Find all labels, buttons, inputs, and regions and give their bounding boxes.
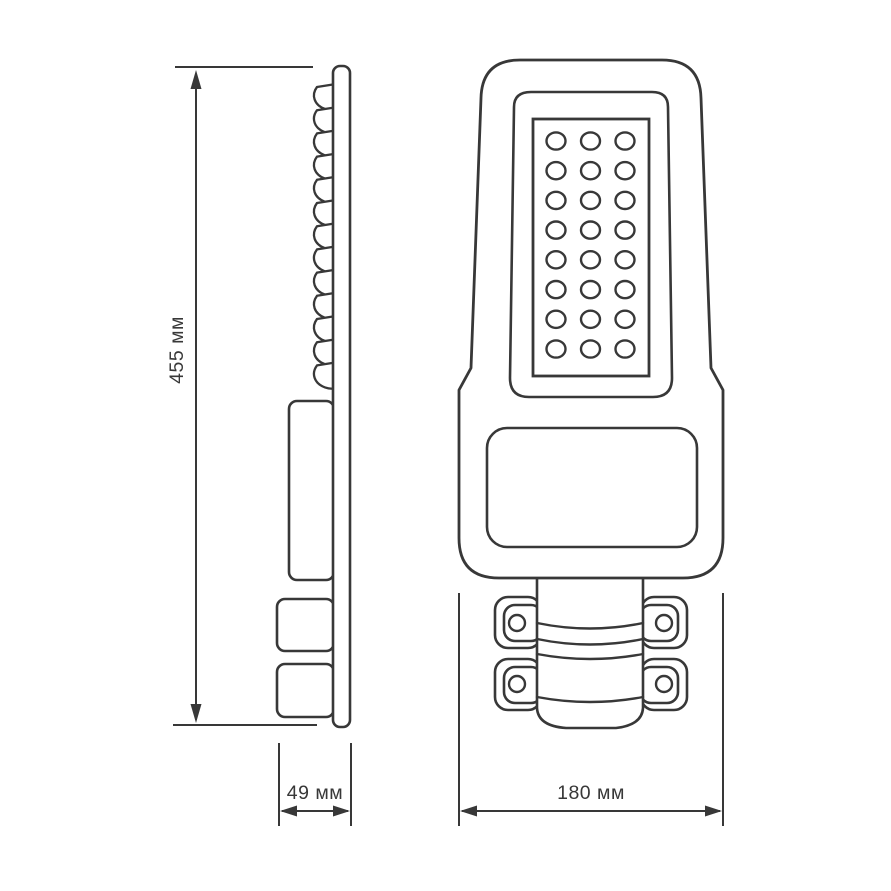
side-clamp-lower (277, 664, 334, 717)
led-lens (616, 340, 635, 357)
technical-drawing: 455 мм 49 мм (0, 0, 891, 891)
depth-dimension: 49 мм (279, 743, 351, 826)
arrow-right-icon (705, 806, 722, 817)
width-dim-label: 180 мм (557, 782, 625, 804)
side-plate (333, 66, 350, 727)
led-lens (616, 192, 635, 209)
front-door-panel (487, 428, 697, 547)
arrow-right-icon (333, 806, 350, 817)
height-dim-label: 455 мм (166, 316, 188, 384)
drawing-page: 455 мм 49 мм (0, 0, 891, 891)
led-lens (547, 222, 566, 239)
led-panel (533, 119, 649, 376)
front-view: 180 мм (459, 60, 723, 826)
led-lens (547, 311, 566, 328)
side-driver-box (289, 401, 334, 580)
led-lens (581, 192, 600, 209)
depth-dim-label: 49 мм (287, 782, 343, 804)
side-view: 455 мм 49 мм (166, 66, 351, 826)
side-clamp-upper (277, 599, 334, 651)
led-lens (547, 281, 566, 298)
led-lens (547, 162, 566, 179)
arrow-left-icon (460, 806, 477, 817)
led-lens (616, 311, 635, 328)
arrow-left-icon (280, 806, 297, 817)
led-lens (581, 251, 600, 268)
led-lens (616, 162, 635, 179)
led-lens (616, 251, 635, 268)
led-lens (616, 222, 635, 239)
led-lens (581, 340, 600, 357)
led-lens (581, 311, 600, 328)
led-lens (547, 251, 566, 268)
led-lens (581, 162, 600, 179)
arrow-down-icon (191, 704, 202, 723)
led-lens (547, 340, 566, 357)
arrow-up-icon (191, 70, 202, 89)
led-lens (581, 132, 600, 149)
led-lens (616, 132, 635, 149)
led-lens (581, 222, 600, 239)
led-lens (616, 281, 635, 298)
led-lens (581, 281, 600, 298)
led-lens (547, 132, 566, 149)
mount-cylinder (537, 578, 643, 728)
led-lens (547, 192, 566, 209)
